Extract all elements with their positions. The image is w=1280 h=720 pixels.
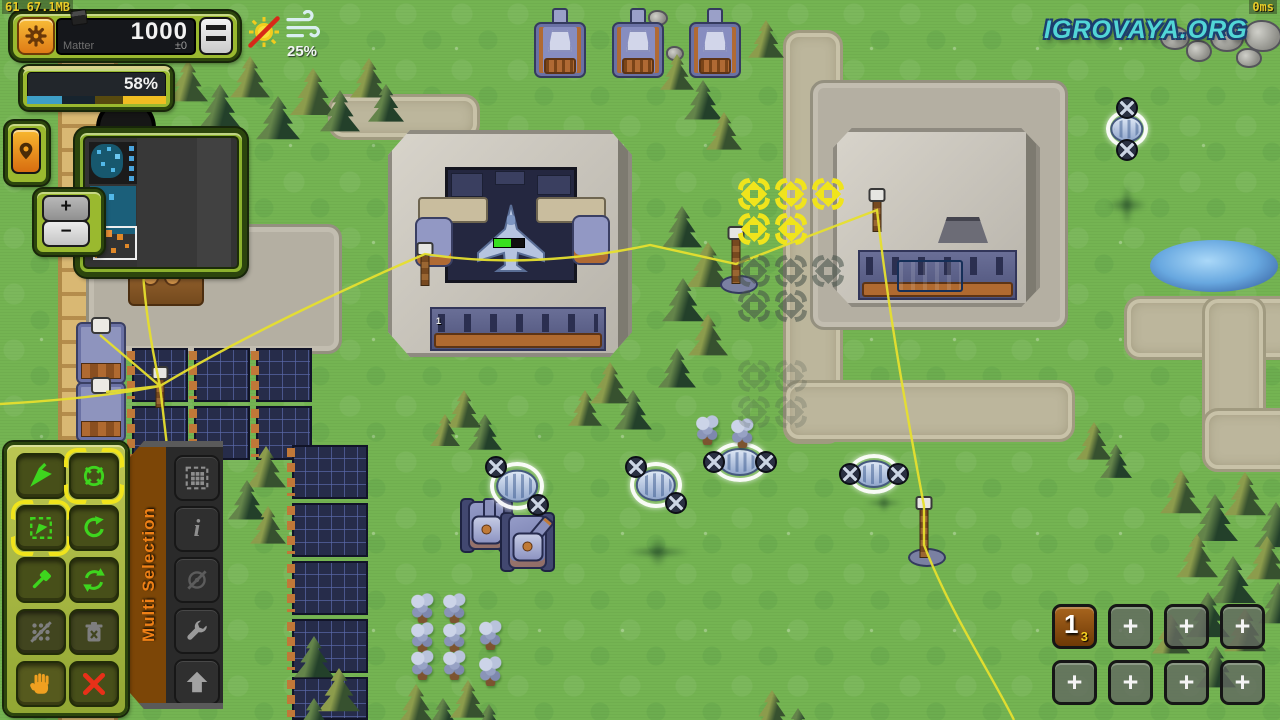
ping-text: 0ms bbox=[1249, 0, 1277, 14]
placement-marker[interactable] bbox=[775, 178, 807, 210]
unit-group-add-button[interactable]: + bbox=[1108, 604, 1153, 649]
mech-unit[interactable] bbox=[410, 593, 436, 623]
solar-panel[interactable] bbox=[256, 348, 312, 402]
unit-group-bar: 1 3 + + + + + + + bbox=[1052, 604, 1265, 705]
plus-icon: + bbox=[1179, 611, 1195, 642]
placement-marker[interactable] bbox=[738, 178, 770, 210]
tank-unit[interactable] bbox=[500, 512, 555, 572]
tree bbox=[446, 390, 482, 430]
tree bbox=[1192, 494, 1238, 544]
landing-pad-building[interactable] bbox=[833, 128, 1040, 307]
placement-marker-ghost bbox=[775, 396, 807, 428]
attack-target-icon bbox=[81, 463, 107, 489]
move-cursor-icon bbox=[28, 463, 54, 489]
drone-unit-selected[interactable] bbox=[490, 462, 544, 510]
zoom-in-button[interactable]: + bbox=[42, 195, 90, 222]
hand-icon bbox=[28, 671, 54, 697]
solar-panel[interactable] bbox=[292, 561, 368, 615]
mech-unit[interactable] bbox=[478, 656, 504, 686]
rotate-queue-button[interactable] bbox=[69, 505, 119, 551]
defense-turret[interactable] bbox=[534, 8, 586, 78]
wind-percent: 25% bbox=[287, 43, 317, 60]
cancel-icon bbox=[81, 671, 107, 697]
power-tower[interactable] bbox=[916, 496, 932, 558]
minimap-mid-band bbox=[137, 138, 199, 267]
tree bbox=[450, 680, 486, 720]
trash-icon bbox=[82, 620, 106, 644]
placement-marker[interactable] bbox=[738, 213, 770, 245]
unit-group-add-button[interactable]: + bbox=[1164, 604, 1209, 649]
placement-marker-ghost bbox=[738, 255, 770, 287]
command-tool-panel bbox=[4, 442, 128, 716]
multi-selection-title: Multi Selection bbox=[132, 441, 166, 709]
select-all-icon bbox=[184, 465, 210, 491]
unit-group-add-button[interactable]: + bbox=[1164, 660, 1209, 705]
power-pole[interactable] bbox=[417, 242, 433, 286]
watermark-text: IGROVAYA.ORG bbox=[1044, 16, 1248, 45]
delete-disabled-button[interactable] bbox=[69, 609, 119, 655]
location-pin-icon bbox=[17, 139, 35, 163]
turret-vent bbox=[622, 58, 654, 74]
rotor-icon bbox=[839, 463, 861, 485]
box-select-icon bbox=[28, 515, 54, 541]
solar-panel[interactable] bbox=[194, 348, 250, 402]
unit-group-add-button[interactable]: + bbox=[1220, 660, 1265, 705]
crystal-pond bbox=[1150, 240, 1278, 292]
drone-unit-selected[interactable] bbox=[630, 462, 682, 508]
tree bbox=[1076, 422, 1112, 462]
group-count: 3 bbox=[1081, 629, 1088, 644]
tree bbox=[168, 60, 208, 104]
network-disabled-button[interactable] bbox=[16, 609, 66, 655]
progress-segments bbox=[27, 96, 166, 104]
select-all-button[interactable] bbox=[174, 455, 220, 501]
road-horizontal-right bbox=[783, 380, 1075, 442]
rotor-icon bbox=[1116, 97, 1138, 119]
rock bbox=[1236, 48, 1262, 68]
road-right-edge-h2 bbox=[1202, 408, 1280, 472]
rotor-icon bbox=[703, 451, 725, 473]
drone-unit-selected[interactable] bbox=[848, 454, 900, 494]
move-command-button[interactable] bbox=[16, 453, 66, 499]
placement-marker-ghost bbox=[738, 360, 770, 392]
tree bbox=[590, 362, 630, 406]
building-wall bbox=[858, 250, 1017, 300]
placement-marker[interactable] bbox=[775, 213, 807, 245]
solar-panel[interactable] bbox=[292, 445, 368, 499]
build-hammer-button[interactable] bbox=[16, 557, 66, 603]
no-attack-icon bbox=[184, 567, 210, 593]
mech-unit[interactable] bbox=[695, 415, 721, 445]
multi-selection-panel: Multi Selection i bbox=[130, 441, 223, 709]
aircraft-shadow bbox=[612, 528, 704, 576]
zoom-controls: + − bbox=[34, 189, 104, 255]
extractor-building[interactable] bbox=[76, 322, 126, 384]
mech-unit[interactable] bbox=[442, 622, 468, 652]
unit-group-add-button[interactable]: + bbox=[1220, 604, 1265, 649]
loop-icon bbox=[81, 567, 107, 593]
menu-button[interactable] bbox=[199, 17, 233, 55]
tree bbox=[256, 96, 300, 142]
rotor-icon bbox=[1116, 139, 1138, 161]
wrench-icon bbox=[184, 618, 210, 644]
rotor-icon bbox=[485, 456, 507, 478]
unit-group-add-button[interactable]: + bbox=[1108, 660, 1153, 705]
factory-queue-count: 1 bbox=[436, 316, 441, 326]
no-auto-attack-button[interactable] bbox=[174, 557, 220, 603]
matter-delta: ±0 bbox=[175, 40, 187, 52]
tree bbox=[662, 206, 702, 250]
zoom-in-icon: + bbox=[60, 196, 71, 217]
placement-marker-ghost bbox=[775, 360, 807, 392]
plus-icon: + bbox=[1235, 667, 1251, 698]
plus-icon: + bbox=[1123, 667, 1139, 698]
pan-hand-button[interactable] bbox=[16, 661, 66, 707]
defense-turret[interactable] bbox=[689, 8, 741, 78]
placement-marker-ghost bbox=[775, 290, 807, 322]
aircraft-shadow bbox=[1098, 172, 1156, 238]
drone-unit-selected[interactable] bbox=[1106, 110, 1148, 148]
extractor-building[interactable] bbox=[76, 382, 126, 442]
rotor-icon bbox=[755, 451, 777, 473]
factory-pod-right bbox=[572, 215, 610, 265]
loop-waypoints-button[interactable] bbox=[69, 557, 119, 603]
rotor-icon bbox=[665, 492, 687, 514]
placement-marker[interactable] bbox=[812, 178, 844, 210]
build-progress-panel: 58% bbox=[20, 66, 173, 110]
tree bbox=[1210, 556, 1256, 606]
mech-unit[interactable] bbox=[442, 650, 468, 680]
minimap-canvas[interactable] bbox=[83, 136, 239, 269]
matter-label: Matter bbox=[63, 40, 94, 52]
drone-unit-selected[interactable] bbox=[712, 442, 768, 482]
plus-icon: + bbox=[1235, 611, 1251, 642]
tree bbox=[230, 56, 270, 100]
rotate-icon bbox=[81, 515, 107, 541]
placement-marker-ghost bbox=[775, 255, 807, 287]
resource-panel: 1000 Matter ±0 bbox=[10, 11, 240, 61]
zoom-out-button[interactable]: − bbox=[42, 220, 90, 247]
plus-icon: + bbox=[1179, 667, 1195, 698]
tree bbox=[780, 708, 816, 720]
tree bbox=[1100, 444, 1132, 480]
tree bbox=[1224, 472, 1266, 518]
settings-button[interactable] bbox=[17, 17, 55, 55]
mech-unit[interactable] bbox=[410, 650, 436, 680]
power-pole[interactable] bbox=[869, 188, 885, 232]
upgrade-button[interactable] bbox=[174, 659, 220, 705]
defense-turret[interactable] bbox=[612, 8, 664, 78]
debug-stats-text: 61 67.1MB bbox=[2, 0, 73, 14]
power-pole[interactable] bbox=[152, 366, 168, 408]
info-icon: i bbox=[194, 516, 201, 543]
wind-icon bbox=[284, 10, 324, 42]
placement-marker-ghost bbox=[738, 396, 770, 428]
rotor-icon bbox=[527, 494, 549, 516]
rotor-icon bbox=[887, 463, 909, 485]
box-select-button[interactable] bbox=[16, 505, 66, 551]
tree bbox=[752, 690, 792, 720]
cancel-button[interactable] bbox=[69, 661, 119, 707]
plus-icon: + bbox=[1067, 667, 1083, 698]
unit-group-add-button[interactable]: + bbox=[1052, 660, 1097, 705]
tree bbox=[748, 20, 784, 60]
attack-target-button[interactable] bbox=[69, 453, 119, 499]
placement-marker-ghost bbox=[812, 255, 844, 287]
progress-percent: 58% bbox=[124, 74, 158, 94]
mech-unit[interactable] bbox=[442, 593, 468, 623]
locate-button[interactable] bbox=[11, 128, 41, 174]
info-button[interactable]: i bbox=[174, 506, 220, 552]
turret-vent bbox=[699, 58, 731, 74]
turret-vent bbox=[544, 58, 576, 74]
solar-panel[interactable] bbox=[292, 619, 368, 673]
tree bbox=[290, 68, 336, 118]
tree bbox=[1160, 470, 1202, 516]
tree bbox=[396, 684, 436, 720]
factory-wall bbox=[430, 307, 606, 351]
repair-button[interactable] bbox=[174, 608, 220, 654]
zoom-out-icon: − bbox=[60, 221, 71, 242]
solar-panel[interactable] bbox=[292, 503, 368, 557]
placement-marker-ghost bbox=[738, 290, 770, 322]
rotor-icon bbox=[625, 456, 647, 478]
mech-unit[interactable] bbox=[410, 622, 436, 652]
no-sun-icon bbox=[246, 14, 282, 50]
network-icon bbox=[28, 619, 54, 645]
factory-build-progress bbox=[493, 238, 525, 248]
unit-group-1-button[interactable]: 1 3 bbox=[1052, 604, 1097, 649]
locate-panel bbox=[5, 121, 49, 185]
hangar-door bbox=[897, 260, 963, 292]
group-number: 1 bbox=[1064, 609, 1078, 640]
gear-icon bbox=[24, 24, 48, 48]
minimap-right-band bbox=[197, 138, 231, 267]
mech-unit[interactable] bbox=[478, 620, 504, 650]
game-viewport[interactable]: 1 bbox=[0, 0, 1280, 720]
upgrade-icon bbox=[184, 669, 210, 695]
plus-icon: + bbox=[1123, 611, 1139, 642]
hammer-icon bbox=[28, 567, 54, 593]
